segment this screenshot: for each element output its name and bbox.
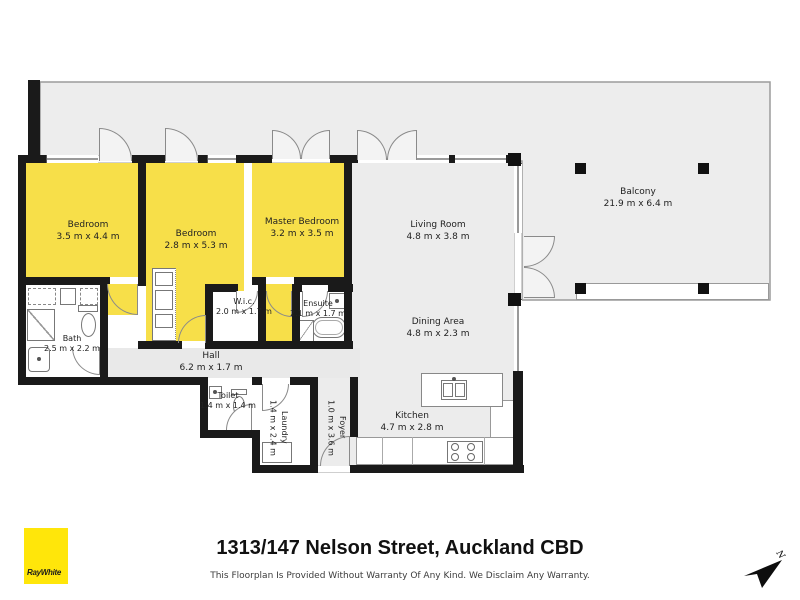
- balcony-post: [575, 163, 586, 174]
- wall: [18, 155, 26, 384]
- burner: [467, 453, 475, 461]
- room-label-balcony: Balcony 21.9 m x 6.4 m: [584, 186, 692, 210]
- room-dims: 21.9 m x 6.4 m: [584, 198, 692, 210]
- counter-divider: [382, 437, 383, 465]
- balcony-post: [575, 283, 586, 294]
- room-label-bedroom2: Bedroom 2.8 m x 5.3 m: [146, 228, 246, 252]
- wardrobe-shelf: [155, 272, 173, 286]
- closet-icon: [28, 288, 56, 305]
- wall: [350, 465, 524, 473]
- wall: [252, 465, 318, 473]
- balcony-post: [698, 283, 709, 294]
- counter-divider: [484, 437, 485, 465]
- sink-drain: [37, 357, 41, 361]
- wall: [205, 341, 353, 349]
- room-name: Bedroom: [146, 228, 246, 240]
- counter-divider: [412, 437, 413, 465]
- room-name: Balcony: [584, 186, 692, 198]
- room-name: Laundry: [278, 390, 290, 465]
- room-name: Dining Area: [388, 316, 488, 328]
- wall: [18, 277, 110, 285]
- room-name: Hall: [168, 350, 254, 362]
- wall: [294, 277, 344, 285]
- wardrobe-shelf: [155, 290, 173, 310]
- room-name: Bedroom: [40, 219, 136, 231]
- room-name: Kitchen: [362, 410, 462, 422]
- room-label-living-room: Living Room 4.8 m x 3.8 m: [388, 219, 488, 243]
- closet-icon: [80, 288, 98, 305]
- wall: [513, 371, 523, 472]
- room-dims: 2.8 m x 5.3 m: [146, 240, 246, 252]
- wall: [132, 155, 165, 163]
- room-label-dining-area: Dining Area 4.8 m x 2.3 m: [388, 316, 488, 340]
- wardrobe-shelf: [155, 314, 173, 328]
- room-name: Living Room: [388, 219, 488, 231]
- room-dims: 6.2 m x 1.7 m: [168, 362, 254, 374]
- sink-basin: [455, 383, 465, 397]
- wall: [198, 155, 207, 163]
- room-dims: 4.8 m x 3.8 m: [388, 231, 488, 243]
- wall: [344, 155, 352, 349]
- room-dims: 3.2 m x 3.5 m: [250, 228, 354, 240]
- kitchen-counter: [356, 437, 516, 465]
- door-opening: [514, 233, 522, 299]
- window: [207, 155, 238, 163]
- wall: [350, 377, 358, 437]
- room-dims: 4.7 m x 2.8 m: [362, 422, 462, 434]
- wall: [310, 377, 318, 472]
- room-label-master-bedroom: Master Bedroom 3.2 m x 3.5 m: [250, 216, 354, 240]
- wall: [18, 377, 207, 385]
- room-label-bedroom1: Bedroom 3.5 m x 4.4 m: [40, 219, 136, 243]
- wall: [28, 80, 40, 165]
- room-label-laundry: Laundry 1.4 m x 2.4 m: [266, 390, 290, 465]
- window: [46, 155, 100, 163]
- toilet-tank: [78, 305, 98, 312]
- room-label-toilet: Toilet 1.4 m x 1.4 m: [193, 391, 263, 412]
- balcony-post: [508, 153, 521, 166]
- room-label-wic: W.i.c. 2.0 m x 1.7 m: [214, 297, 274, 318]
- room-name: Master Bedroom: [250, 216, 354, 228]
- wall: [205, 284, 213, 349]
- room-dims: 1.0 m x 3.6 m: [325, 385, 337, 470]
- balcony-post: [508, 293, 521, 306]
- window-wall: [514, 299, 522, 373]
- room-label-bath: Bath 2.5 m x 2.2 m: [36, 334, 108, 355]
- room-label-kitchen: Kitchen 4.7 m x 2.8 m: [362, 410, 462, 434]
- burner: [467, 443, 475, 451]
- room-dims: 2.0 m x 1.7 m: [214, 307, 274, 317]
- closet-icon: [60, 288, 76, 305]
- room-dims: 2.1 m x 1.7 m: [288, 309, 348, 319]
- balcony-planter: [576, 283, 769, 300]
- north-arrow: N: [740, 550, 792, 592]
- room-name: Foyer: [336, 385, 348, 470]
- room-dims: 1.4 m x 2.4 m: [267, 390, 279, 465]
- room-name: W.i.c.: [214, 297, 274, 307]
- vestibule-floor: [107, 315, 138, 348]
- wall: [252, 277, 266, 285]
- room-name: Bath: [36, 334, 108, 344]
- wall: [252, 377, 262, 385]
- burner: [451, 443, 459, 451]
- disclaimer-text: This Floorplan Is Provided Without Warra…: [0, 571, 800, 581]
- wall: [138, 155, 146, 286]
- room-label-foyer: Foyer 1.0 m x 3.6 m: [322, 385, 348, 470]
- room-label-hall: Hall 6.2 m x 1.7 m: [168, 350, 254, 374]
- bathtub-inner: [315, 320, 343, 335]
- room-name: Toilet: [193, 391, 263, 401]
- room-dims: 4.8 m x 2.3 m: [388, 328, 488, 340]
- sink-basin: [443, 383, 453, 397]
- window-wall: [514, 163, 522, 235]
- burner: [451, 453, 459, 461]
- floorplan-canvas: Bedroom 3.5 m x 4.4 m Bedroom 2.8 m x 5.…: [0, 0, 800, 600]
- room-name: Ensuite: [288, 299, 348, 309]
- shower-icon: [298, 320, 314, 342]
- wall: [200, 430, 260, 438]
- room-dims: 2.5 m x 2.2 m: [36, 344, 108, 354]
- room-label-ensuite: Ensuite 2.1 m x 1.7 m: [288, 299, 348, 320]
- faucet: [452, 377, 456, 381]
- mullion: [449, 155, 455, 163]
- room-dims: 3.5 m x 4.4 m: [40, 231, 136, 243]
- page-title: 1313/147 Nelson Street, Auckland CBD: [0, 537, 800, 560]
- wall: [236, 155, 272, 163]
- room-dims: 1.4 m x 1.4 m: [193, 401, 263, 411]
- wall: [138, 341, 182, 349]
- balcony-post: [698, 163, 709, 174]
